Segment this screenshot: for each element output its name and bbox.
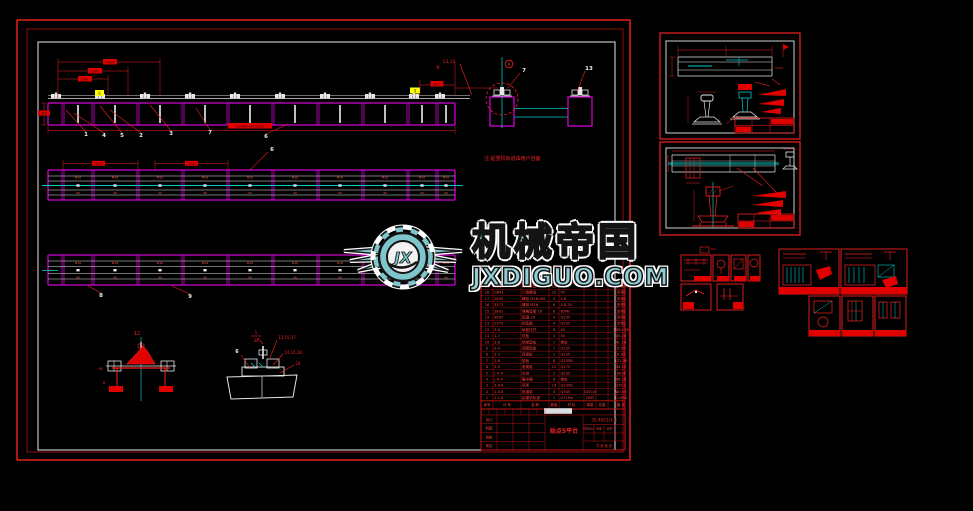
bay-label-bottom: 40 xyxy=(158,276,162,280)
bom-cell: 16 xyxy=(485,303,490,307)
balloon-leader xyxy=(100,106,122,133)
bom-cell: W=26 xyxy=(615,390,627,394)
bom-cell: 65Mn xyxy=(561,309,571,313)
bom-row: 11-1-8起重机轨道1U71Mn1835L=960 xyxy=(486,395,628,400)
bom-cell: 斜垫圈 xyxy=(522,321,533,326)
rail-clamp-bolt xyxy=(189,93,191,99)
bay-label-bottom: 40 xyxy=(203,276,207,280)
beam2-plan: M1640M1640M1640M1640M1640M1640M1640M1640… xyxy=(42,170,463,200)
pair-label: 13,14 xyxy=(443,59,456,65)
bom-cell: 3 xyxy=(553,334,555,338)
rail-clamp xyxy=(192,94,196,99)
rail-clamp xyxy=(237,94,241,99)
dim-top-3: 500 xyxy=(82,77,89,81)
bay-label-bottom: 40 xyxy=(248,276,252,280)
bom-row: 33-8-8吊架14Q235B145.2 xyxy=(486,383,626,388)
bay-bolt xyxy=(158,269,161,271)
balloon-13: 13 xyxy=(585,66,593,72)
bom-cell: 垫板 xyxy=(522,358,530,363)
bay-label-bottom: 40 xyxy=(158,191,162,195)
watermark-text: 机械帝国 JXDIGUO.COM xyxy=(472,223,669,290)
bom-cell: 1 xyxy=(486,396,488,400)
bom-cell: 橡胶 xyxy=(561,339,569,344)
bay-label-bottom: 40 xyxy=(113,191,117,195)
bom-cell: 2 xyxy=(553,371,555,375)
rail-clamp xyxy=(327,94,331,99)
bay-bolt xyxy=(113,184,116,186)
bom-cell: 15 xyxy=(485,309,490,313)
rail-clamp xyxy=(365,94,369,99)
bom-cell: 4 xyxy=(553,390,556,394)
bom-table: 19GB80方头螺栓1245外购18GB41六角螺母1245外购172659螺栓… xyxy=(481,283,629,414)
bom-header: 材 料 xyxy=(568,402,576,407)
bom-cell: U71Mn xyxy=(561,396,574,400)
bay-label-bottom: 40 xyxy=(248,191,252,195)
balloon-leader xyxy=(66,110,86,132)
bom-cell: 3-4 xyxy=(494,347,501,351)
dimension-lines: 20001000500800N11000=22×500550500500 xyxy=(38,58,455,170)
beam1-rail-clamps: 88 xyxy=(48,88,470,99)
rail-clamp xyxy=(282,94,286,99)
bay-label-bottom: 40 xyxy=(76,276,80,280)
detail-clamp-section: 12 65 6 xyxy=(99,331,176,401)
bom-cell: Q345 xyxy=(561,390,571,394)
balloon-number: 8 xyxy=(99,293,103,299)
rail-clamp-bolt xyxy=(439,93,441,99)
detail2-balloon: 6 xyxy=(235,349,239,355)
bom-cell: Q235 xyxy=(561,353,571,357)
bom-cell: 绝缘垫板 xyxy=(522,339,537,344)
bay-bolt xyxy=(158,184,161,186)
balloon-leader xyxy=(88,286,101,293)
balloon-number: 4 xyxy=(102,133,106,139)
bom-cell: 垫圈 16 xyxy=(522,315,536,320)
bom-cell: 5 xyxy=(486,371,488,375)
bom-cell: 压板 xyxy=(522,333,530,338)
detail-clamp-isometric: 1 34 13,15,17 14,16,28 24 6 xyxy=(227,330,302,399)
balloon-number: 6 xyxy=(264,134,268,140)
dim-overall: 11000=22×500 xyxy=(236,124,264,128)
bom-cell: 8 xyxy=(553,359,556,363)
bay-label-bottom: 40 xyxy=(203,191,207,195)
balloon-leader xyxy=(196,108,210,130)
bay-label-top: M16 xyxy=(75,176,81,180)
bom-cell: 7 xyxy=(486,359,488,363)
rail-clamp-bolt xyxy=(324,93,326,99)
rail-clamp-bolt xyxy=(234,93,236,99)
bom-cell: 3 xyxy=(553,297,555,301)
bom-cell: 2659 xyxy=(494,297,504,301)
tb-attr-label: 比例 xyxy=(607,426,613,430)
bay-label-bottom: 40 xyxy=(76,191,80,195)
bom-cell: 12 xyxy=(485,328,490,332)
bom-cell: 6 xyxy=(553,309,556,313)
bom-cell: 3-5 xyxy=(494,365,500,369)
drawing-note: 注 起重机轨道由用户自备 xyxy=(484,155,541,162)
bom-cell: 1-5-8 xyxy=(494,390,504,394)
bom-cell: 8 xyxy=(553,378,556,382)
bom-cell: 连接板 xyxy=(522,352,533,357)
bay-label-bottom: 40 xyxy=(383,191,387,195)
tb-role-label: 校核 xyxy=(486,434,493,439)
balloon-number: 2 xyxy=(139,133,143,139)
detail2-callout-2: 14,16,28 xyxy=(284,350,302,355)
bom-cell: 14 xyxy=(485,316,490,320)
bom-cell: 弹簧垫圈 16 xyxy=(522,308,543,313)
bom-cell: 8 xyxy=(486,353,489,357)
bom-highlight-cell xyxy=(544,408,572,414)
bom-cell: 吊架 xyxy=(522,383,530,388)
bay-label-bottom: 40 xyxy=(420,191,424,195)
tb-attr-label: 重量 xyxy=(596,426,602,430)
bom-cell: 4697 xyxy=(494,316,503,320)
bom-header: 名 称 xyxy=(531,402,539,407)
small-part-panels-a xyxy=(681,247,760,310)
watermark: JX 机械帝国 JXDIGUO.COM xyxy=(336,220,669,294)
bom-cell: 6 xyxy=(553,303,556,307)
bay-label-top: M16 xyxy=(157,176,163,180)
bom-row: 71-8垫板8Q235B172.35 xyxy=(486,358,627,363)
bom-cell: 起重机轨道 xyxy=(522,395,540,400)
bom-cell: 1 xyxy=(553,347,555,351)
bom-cell: 4 xyxy=(486,378,489,382)
tb-role-label: 设计 xyxy=(486,417,493,422)
rail-clamp-bolt xyxy=(369,93,371,99)
bom-cell: 11 xyxy=(485,334,490,338)
bom-cell: 3-6 xyxy=(494,328,501,332)
yellow-tag: 8 xyxy=(414,89,417,94)
balloon-7: 7 xyxy=(522,68,526,74)
bom-cell: 3-8-8 xyxy=(494,384,504,388)
bay-label-top: M16 xyxy=(202,261,208,265)
bom-cell: 1-7 xyxy=(494,334,500,338)
bom-cell: 1-1-8 xyxy=(494,396,504,400)
bom-cell: 4.35 xyxy=(617,353,625,357)
tb-role-label: 审定 xyxy=(486,443,493,448)
rail-clamp-bolt xyxy=(144,93,146,99)
bom-cell: 4 xyxy=(553,316,556,320)
bom-cell: 外购 xyxy=(617,315,625,320)
bay-bolt xyxy=(338,184,341,186)
bom-cell: 1 xyxy=(553,340,555,344)
bom-row: 123-6轨距拉杆845M65×28 xyxy=(485,327,630,332)
bom-cell: M65×28 xyxy=(613,328,629,332)
cad-canvas: 88 M1640M1640M1640M1640M1640M1640M1640M1… xyxy=(0,0,973,511)
bay-bolt xyxy=(203,184,206,186)
balloon-number: 3 xyxy=(169,131,173,137)
detail2-callout-1: 13,15,17 xyxy=(278,335,296,340)
bom-cell: 17 xyxy=(485,297,490,301)
rail-clamp xyxy=(372,94,376,99)
rail-clamp xyxy=(409,94,413,99)
rail-clamp xyxy=(140,94,144,99)
bom-cell: 13 xyxy=(485,322,490,326)
bay-bolt xyxy=(76,269,79,271)
bom-cell: Q235 xyxy=(561,322,571,326)
bom-row: 5L-4-0车挡2Q23596.4 xyxy=(486,370,626,375)
bom-cell: 螺母 M16 xyxy=(522,302,539,307)
bom-cell: 橡胶 xyxy=(561,377,569,382)
balloon-number: 1 xyxy=(84,132,88,138)
dim-right: 800 xyxy=(434,82,441,86)
bom-cell: L-4-0 xyxy=(494,371,504,375)
bom-row: 144697垫圈 164Q235外购 xyxy=(485,315,625,320)
balloon-callouts: 1452376689 xyxy=(66,105,288,300)
bom-cell: 1835 xyxy=(585,396,594,400)
bom-cell: 外购 xyxy=(617,308,625,313)
rail-clamp xyxy=(147,94,151,99)
bom-cell: 8 xyxy=(553,328,556,332)
bay-label-top: M16 xyxy=(337,176,343,180)
bom-cell: 外购 xyxy=(617,296,625,301)
bom-cell: 145.2 xyxy=(616,384,626,388)
bay-label-top: M16 xyxy=(247,261,253,265)
bom-cell: 96.4 xyxy=(617,371,626,375)
bom-cell: Q235 xyxy=(561,347,571,351)
bom-cell: Q235B xyxy=(561,384,574,388)
drawing-title: 始点5平台 xyxy=(550,427,578,435)
rail-clamp xyxy=(51,94,55,99)
bom-row: 21-5-8轨道梁4Q3451450.6W=26 xyxy=(486,389,627,394)
panel-rail-sheet-1 xyxy=(660,33,800,139)
bom-cell: 1 xyxy=(553,396,555,400)
bom-row: 132379斜垫圈4Q235外购 xyxy=(485,321,625,326)
rail-clamp xyxy=(275,94,279,99)
bom-header: 单重 xyxy=(587,402,594,407)
bom-cell: 43-26 xyxy=(616,334,627,338)
bom-cell: Q275 xyxy=(561,365,571,369)
bom-cell: 2801 xyxy=(494,309,503,313)
bom-row: 83-3连接板1Q2354.35 xyxy=(486,352,625,357)
bom-cell: 4.8 xyxy=(561,297,567,301)
bay-bolt xyxy=(444,184,447,186)
detail2-callout-3: 24 xyxy=(295,361,301,366)
bom-cell: 10 xyxy=(485,340,490,344)
bay-label-bottom: 40 xyxy=(293,191,297,195)
bay-label-bottom: 40 xyxy=(293,276,297,280)
tb-attr-label: 阶段标记 xyxy=(583,426,594,430)
bom-cell: 3-8 xyxy=(494,340,501,344)
bom-cell: 2 xyxy=(486,390,488,394)
dim-b2-1: 500 xyxy=(95,162,101,166)
balloon-number: 5 xyxy=(120,133,124,139)
bom-cell: 4.8-Zn xyxy=(561,303,573,307)
bay-label-top: M16 xyxy=(292,261,298,265)
bay-bolt xyxy=(113,269,116,271)
bom-row: 4L-6-0缓冲器8橡胶96.18 xyxy=(486,377,627,382)
bom-cell: 外购 xyxy=(617,302,625,307)
detail1-dim-a: 65 xyxy=(99,367,104,371)
bom-cell: Q235B xyxy=(561,359,574,363)
bom-row: 103-8绝缘垫板1橡胶4L 26 xyxy=(485,339,627,344)
sheet-info: 共 张 第 张 xyxy=(596,443,613,448)
bay-bolt xyxy=(293,184,296,186)
bom-header: 代 号 xyxy=(503,402,511,407)
bom-cell: 9 xyxy=(486,347,489,351)
bay-bolt xyxy=(383,184,386,186)
bay-label-top: M16 xyxy=(75,261,81,265)
rail-clamp xyxy=(320,94,324,99)
bay-label-bottom: 40 xyxy=(444,191,448,195)
dim-top-2: 1000 xyxy=(91,69,100,73)
dim-top-1: 2000 xyxy=(106,60,115,64)
bom-cell: Q235 xyxy=(561,316,571,320)
bom-cell: 45 xyxy=(561,328,566,332)
bom-row: 172659螺栓 M16×6534.8外购 xyxy=(485,296,625,301)
bay-bolt xyxy=(293,269,296,271)
bom-cell: 3-3 xyxy=(494,353,500,357)
balloon-number: 6 xyxy=(270,147,274,153)
bom-cell: 1 xyxy=(553,353,555,357)
bay-label-top: M16 xyxy=(419,176,425,180)
rail-clamp xyxy=(416,94,420,99)
bom-row: 93-4调整垫板1Q2354.35 xyxy=(486,346,625,351)
bom-cell: 轨道梁 xyxy=(522,389,533,394)
bay-bolt xyxy=(248,184,251,186)
balloon-number: 9 xyxy=(188,294,192,300)
beam1-elevation xyxy=(48,103,455,125)
watermark-domain: JXDIGUO.COM xyxy=(472,264,669,290)
detail2-ref-num: 1 xyxy=(255,330,258,335)
rail-clamp xyxy=(442,94,446,99)
bay-label-bottom: 40 xyxy=(113,276,117,280)
bom-cell: 1-8 xyxy=(494,359,501,363)
watermark-brand: 机械帝国 xyxy=(472,223,669,263)
bom-cell: 6 xyxy=(486,365,489,369)
bay-bolt xyxy=(76,184,79,186)
beam1-end-section: A 7 13 13,14 xyxy=(443,57,593,128)
bom-cell: 38.25 xyxy=(616,365,626,369)
bom-cell: 4L 26 xyxy=(616,340,627,344)
rail-clamp-bolt xyxy=(279,93,281,99)
bom-cell: 鱼尾板 xyxy=(522,364,533,369)
rail-clamp xyxy=(435,94,439,99)
detail1-dim-b: 6 xyxy=(103,381,106,385)
bom-header: 数量 xyxy=(551,402,558,407)
bom-cell: 172.35 xyxy=(615,359,628,363)
bom-row: 163373螺母 M1664.8-Zn外购 xyxy=(485,302,625,307)
balloon-leader xyxy=(250,152,268,170)
bom-row: 63-5鱼尾板15Q27538.25 xyxy=(486,364,626,369)
bom-header: 序号 xyxy=(484,402,491,407)
bom-cell: 14 xyxy=(552,384,557,388)
bom-header: 备 注 xyxy=(617,402,625,407)
bom-cell: 1450.6 xyxy=(584,390,597,394)
bom-cell: 外购 xyxy=(617,321,625,326)
bom-cell: 15 xyxy=(552,365,557,369)
bom-cell: L=960 xyxy=(615,396,628,400)
dim-left: 550 xyxy=(41,112,47,116)
watermark-gear-wings-icon: JX xyxy=(336,220,470,294)
bay-bolt xyxy=(248,269,251,271)
bom-cell: 4.35 xyxy=(617,347,625,351)
panel-rail-sheet-2 xyxy=(660,142,800,235)
bom-cell: 96.18 xyxy=(616,378,627,382)
bom-cell: 2379 xyxy=(494,322,504,326)
bay-label-top: M16 xyxy=(292,176,298,180)
bom-header: 总重 xyxy=(599,402,606,407)
logo-monogram: JX xyxy=(391,249,413,267)
yellow-tag: 8 xyxy=(98,91,101,96)
gear-icon: JX xyxy=(373,227,433,287)
bom-cell: 3373 xyxy=(494,303,503,307)
bay-label-bottom: 40 xyxy=(338,191,342,195)
dim-b2-2: 500 xyxy=(188,162,194,166)
bom-cell: 4 xyxy=(553,322,556,326)
bay-label-top: M16 xyxy=(443,176,449,180)
bay-label-top: M16 xyxy=(112,261,118,265)
tb-role-label: 制图 xyxy=(486,426,493,431)
bom-row: 152801弹簧垫圈 16665Mn外购 xyxy=(485,308,625,313)
small-part-panels-b xyxy=(779,249,907,336)
bom-cell: 45 xyxy=(561,334,566,338)
bom-cell: L-6-0 xyxy=(494,378,504,382)
bay-label-top: M16 xyxy=(247,176,253,180)
rail-clamp xyxy=(230,94,234,99)
dim-right-mark: N xyxy=(437,65,440,70)
bom-cell: 轨距拉杆 xyxy=(522,327,537,332)
title-block-text: 始点5平台 35.4001/1-8 共 张 第 张 xyxy=(550,418,617,449)
bom-cell: 3 xyxy=(486,384,488,388)
balloon-leader xyxy=(172,286,190,294)
bom-cell: 螺栓 M16×65 xyxy=(522,296,546,301)
bay-label-top: M16 xyxy=(112,176,118,180)
balloon-number: 7 xyxy=(208,130,212,136)
rail-clamp-bolt xyxy=(55,93,57,99)
rail-clamp xyxy=(185,94,189,99)
bay-label-top: M16 xyxy=(157,261,163,265)
detail2-ref-den: 34 xyxy=(253,338,259,343)
bay-bolt xyxy=(420,184,423,186)
bom-cell: 缓冲器 xyxy=(522,377,533,382)
bay-label-top: M16 xyxy=(382,176,388,180)
bay-bolt xyxy=(203,269,206,271)
bay-label-top: M16 xyxy=(202,176,208,180)
detail1-balloon: 12 xyxy=(134,331,140,337)
bom-row: 111-7压板34543-26 xyxy=(485,333,627,338)
drawing-number: 35.4001/1-8 xyxy=(591,418,617,423)
bom-cell: 调整垫板 xyxy=(522,346,537,351)
bom-cell: 车挡 xyxy=(522,370,530,375)
bom-cell: Q235 xyxy=(561,371,571,375)
